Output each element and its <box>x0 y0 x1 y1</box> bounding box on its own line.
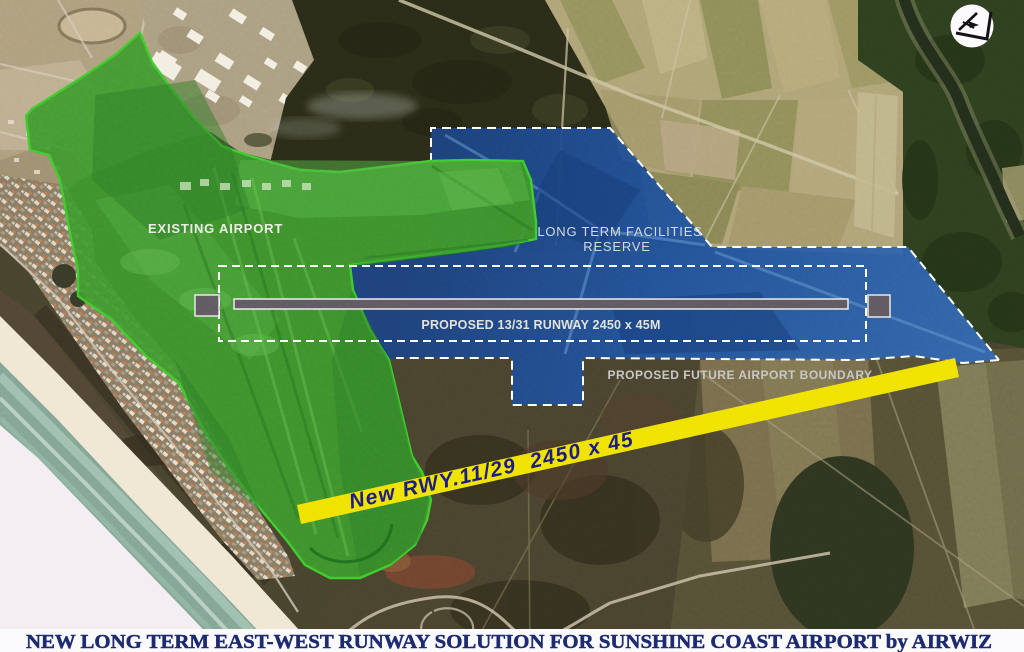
svg-text:NEW LONG TERM EAST-WEST RUNWAY: NEW LONG TERM EAST-WEST RUNWAY SOLUTION … <box>26 631 992 652</box>
